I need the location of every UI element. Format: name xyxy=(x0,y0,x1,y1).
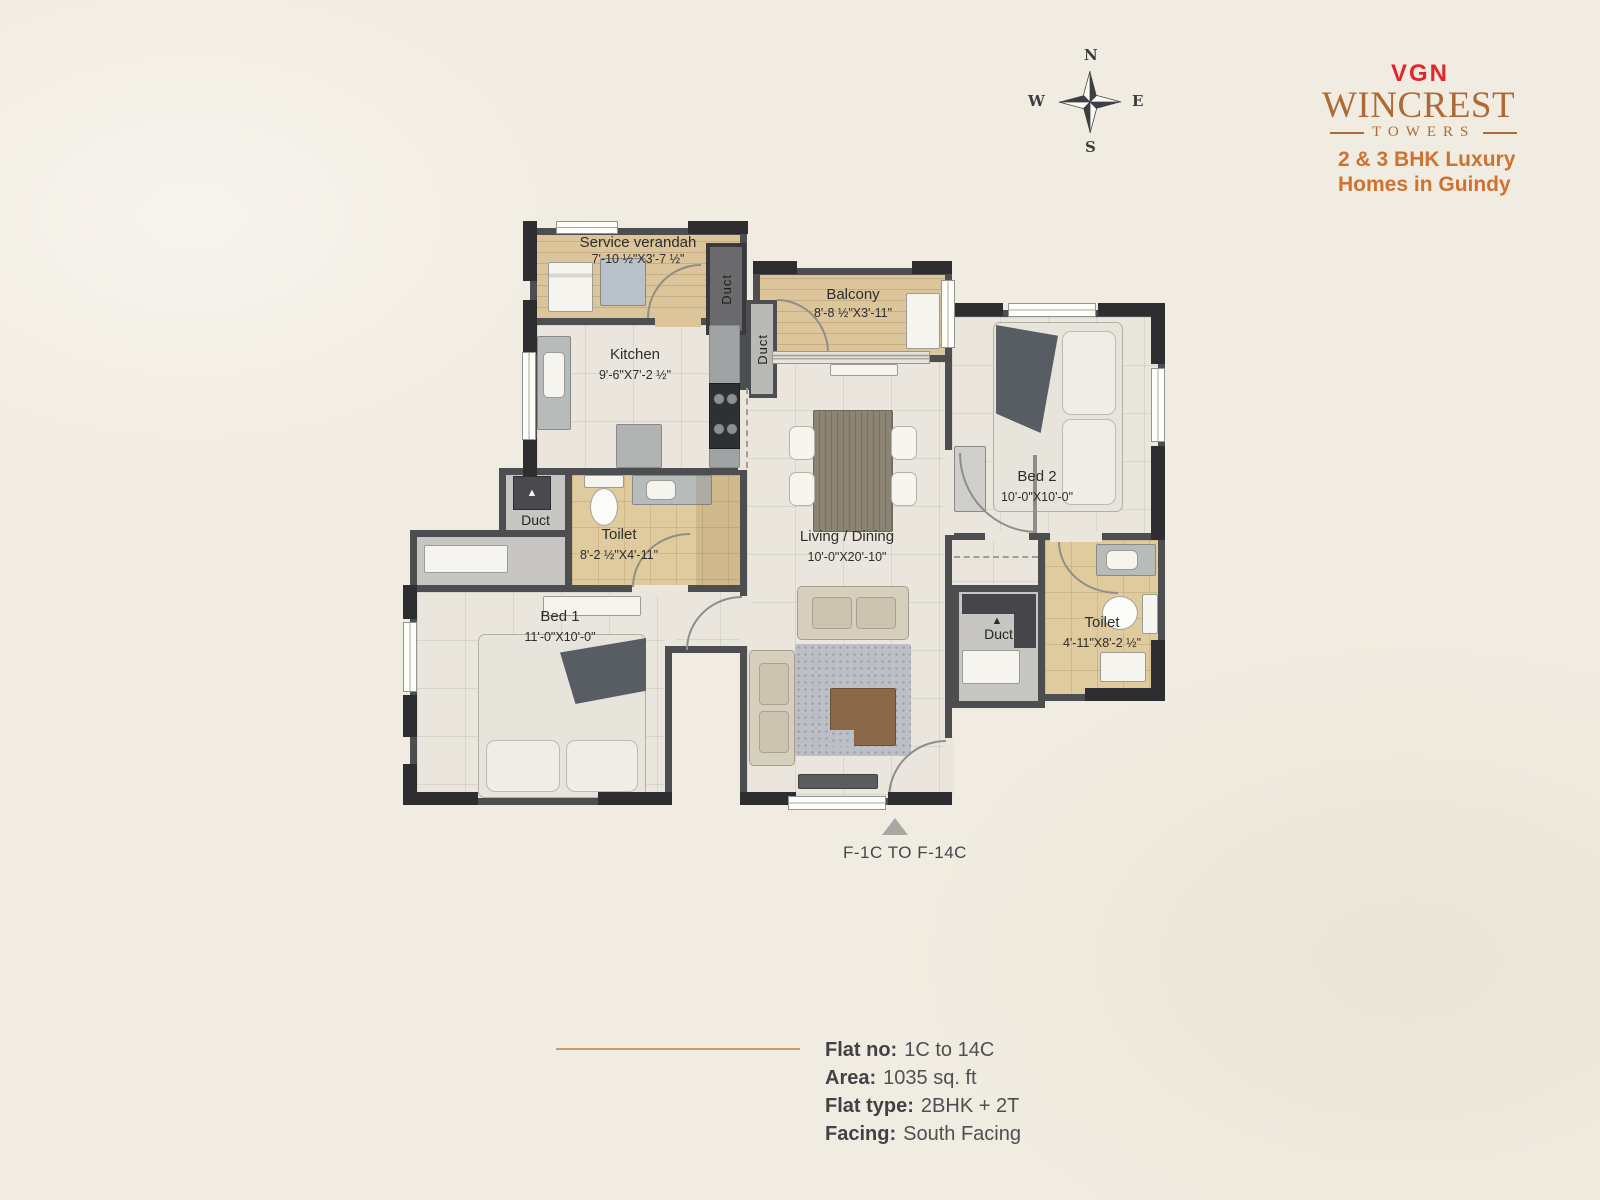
room-dim: 11'-0"X10'-0" xyxy=(478,628,642,646)
compass-south-label: S xyxy=(1085,138,1096,156)
dining-chair xyxy=(789,426,815,460)
flat-details: Flat no: 1C to 14C Area: 1035 sq. ft Fla… xyxy=(825,1036,1021,1148)
room-dim: 8'-2 ½"X4'-11" xyxy=(556,546,682,564)
room-label-bed1: Bed 1 11'-0"X10'-0" xyxy=(478,606,642,646)
room-name: Bed 1 xyxy=(478,606,642,628)
detail-label: Flat type: xyxy=(825,1092,914,1120)
window xyxy=(941,280,955,348)
balcony-sliding-door xyxy=(772,351,930,364)
bed2-pillow xyxy=(1062,331,1116,415)
brand-sub-row: TOWERS xyxy=(1330,124,1517,141)
shower-area xyxy=(696,475,740,585)
brand-tagline-line2: Homes in Guindy xyxy=(1338,173,1515,198)
wc-bowl xyxy=(590,488,618,526)
room-label-bed2: Bed 2 10'-0"X10'-0" xyxy=(975,466,1099,506)
window xyxy=(522,352,536,440)
refrigerator xyxy=(616,424,662,468)
wall-column xyxy=(1085,688,1165,701)
window xyxy=(1151,368,1165,442)
wc-tank xyxy=(584,475,624,488)
room-dim: 7'-10 ½"X3'-7 ½" xyxy=(540,252,736,267)
window xyxy=(788,796,886,810)
window xyxy=(1008,303,1096,317)
duct-verandah-text: Duct xyxy=(719,274,734,305)
room-name: Living / Dining xyxy=(762,526,932,548)
door-opening xyxy=(943,450,954,535)
compass-west-label: W xyxy=(1028,92,1045,110)
detail-value: South Facing xyxy=(903,1120,1021,1148)
bed1-pillow xyxy=(486,740,560,792)
wall-column xyxy=(753,261,797,274)
entry-direction-arrow-icon xyxy=(882,818,908,835)
sofa-three-seater xyxy=(797,586,909,640)
detail-value: 2BHK + 2T xyxy=(921,1092,1019,1120)
wall-column xyxy=(403,695,417,737)
sofa-cushion xyxy=(856,597,896,629)
dining-chair xyxy=(891,472,917,506)
room-label-balcony: Balcony 8'-8 ½"X3'-11" xyxy=(763,285,943,321)
brand-tagline: 2 & 3 BHK Luxury Homes in Guindy xyxy=(1338,148,1515,197)
wall-column xyxy=(523,300,537,354)
dining-table xyxy=(813,410,893,532)
brochure-page: N W E S VGN WINCREST TOWERS 2 & 3 BHK Lu… xyxy=(0,0,1600,1200)
wall-column xyxy=(410,792,478,805)
room-name: Toilet xyxy=(1042,612,1162,634)
tv-unit xyxy=(798,774,878,789)
dashed-partition xyxy=(954,556,1038,558)
wall-column xyxy=(523,221,537,281)
brand-project-name: WINCREST xyxy=(1322,84,1515,127)
wall-column xyxy=(1151,310,1165,364)
detail-label: Flat no: xyxy=(825,1036,897,1064)
sofa-two-seater xyxy=(749,650,795,766)
detail-row-flat-type: Flat type: 2BHK + 2T xyxy=(825,1092,1021,1120)
room-dim: 10'-0"X20'-10" xyxy=(762,548,932,566)
compass-rose-icon xyxy=(1056,68,1124,136)
washbasin xyxy=(646,480,676,500)
room-label-toilet2: Toilet 4'-11"X8'-2 ½" xyxy=(1042,612,1162,652)
window xyxy=(403,622,417,692)
bed1-pillow xyxy=(566,740,638,792)
wall-column xyxy=(688,221,748,234)
duct-right-label: Duct xyxy=(952,626,1045,642)
detail-value: 1C to 14C xyxy=(904,1036,994,1064)
room-name: Balcony xyxy=(763,285,943,305)
wall-column xyxy=(1151,446,1165,540)
room-label-service-verandah: Service verandah 7'-10 ½"X3'-7 ½" xyxy=(540,234,736,267)
detail-row-facing: Facing: South Facing xyxy=(825,1120,1021,1148)
brand-sub-label: TOWERS xyxy=(1372,124,1475,141)
wall-column xyxy=(403,585,417,619)
sofa-cushion xyxy=(759,663,789,705)
detail-value: 1035 sq. ft xyxy=(883,1064,976,1092)
washing-machine xyxy=(548,262,593,312)
sofa-cushion xyxy=(812,597,852,629)
wall-column xyxy=(523,438,537,476)
compass-north-label: N xyxy=(1084,46,1098,64)
room-name: Toilet xyxy=(556,524,682,546)
room-dim: 4'-11"X8'-2 ½" xyxy=(1042,634,1162,652)
detail-row-area: Area: 1035 sq. ft xyxy=(825,1064,1021,1092)
room-name: Bed 2 xyxy=(975,466,1099,488)
coffee-table-notch xyxy=(830,730,854,746)
towers-left-rule xyxy=(1330,132,1364,134)
brand-tagline-line1: 2 & 3 BHK Luxury xyxy=(1338,148,1515,173)
wall-column xyxy=(598,792,672,805)
room-dim: 9'-6"X7'-2 ½" xyxy=(555,366,715,384)
detail-label: Area: xyxy=(825,1064,876,1092)
duct-balcony-text: Duct xyxy=(755,334,770,365)
door-opening xyxy=(665,596,676,646)
wardrobe-unit xyxy=(424,545,508,573)
wall-column xyxy=(912,261,952,274)
room-label-living-dining: Living / Dining 10'-0"X20'-10" xyxy=(762,526,932,566)
duct-left-shaft: ▲ xyxy=(513,476,551,510)
dining-chair xyxy=(789,472,815,506)
duct-vent xyxy=(962,650,1020,684)
wall-column xyxy=(888,792,952,805)
room-label-kitchen: Kitchen 9'-6"X7'-2 ½" xyxy=(555,344,715,384)
dashed-partition xyxy=(746,388,748,468)
details-divider-rule xyxy=(556,1048,800,1050)
flat-range-label: F-1C TO F-14C xyxy=(805,843,1005,863)
console-shelf xyxy=(830,364,898,376)
door-opening xyxy=(1050,531,1102,542)
dining-chair xyxy=(891,426,917,460)
duct-left-label: Duct xyxy=(499,512,572,528)
bath-shelf xyxy=(1100,652,1146,682)
room-dim: 10'-0"X10'-0" xyxy=(975,488,1099,506)
door-opening xyxy=(985,531,1029,542)
towers-right-rule xyxy=(1483,132,1517,134)
stove-hob xyxy=(709,383,740,449)
room-label-toilet1: Toilet 8'-2 ½"X4'-11" xyxy=(556,524,682,564)
room-name: Service verandah xyxy=(540,234,736,252)
detail-row-flat-no: Flat no: 1C to 14C xyxy=(825,1036,1021,1064)
sofa-cushion xyxy=(759,711,789,753)
room-dim: 8'-8 ½"X3'-11" xyxy=(763,305,943,321)
room-name: Kitchen xyxy=(555,344,715,366)
detail-label: Facing: xyxy=(825,1120,896,1148)
window xyxy=(556,221,618,234)
compass-east-label: E xyxy=(1132,92,1143,110)
